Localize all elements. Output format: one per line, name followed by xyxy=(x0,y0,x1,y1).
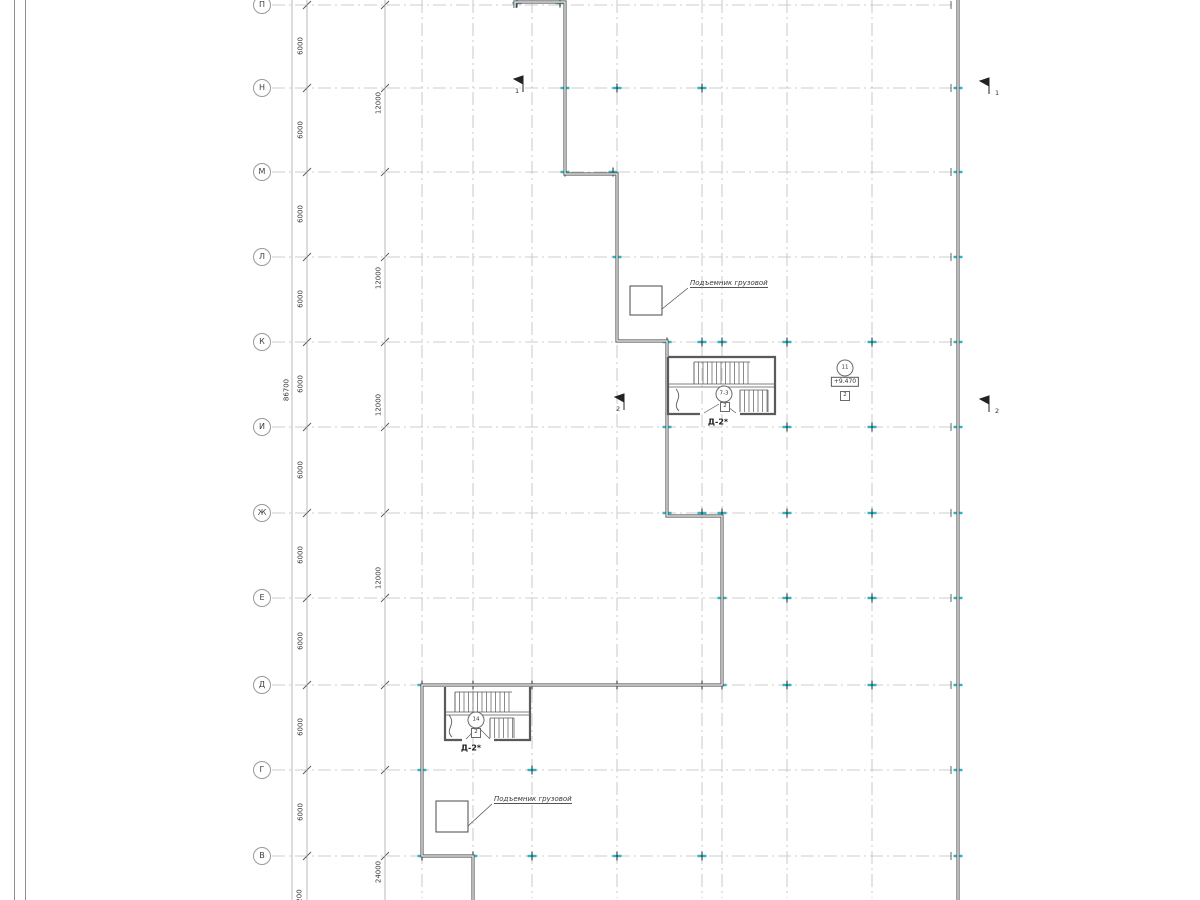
grid-layer xyxy=(272,0,963,900)
dim-12000: 12000 xyxy=(376,567,383,589)
row-axis-bubble: К xyxy=(253,333,271,351)
row-axis-bubble: Л xyxy=(253,248,271,266)
hoist-2-leader xyxy=(468,804,492,826)
dim-6000: 6000 xyxy=(298,803,305,821)
row-axis-bubble: И xyxy=(253,418,271,436)
section-2-right-number: 2 xyxy=(995,408,999,415)
stair1-tag: Д-2* xyxy=(708,418,728,427)
dim-24000: 24000 xyxy=(376,861,383,883)
dim-total-86700: 86700 xyxy=(284,379,291,401)
level-detail-square: 2 xyxy=(840,391,850,401)
section-1-left-number: 1 xyxy=(515,88,519,95)
row-axis-bubble: М xyxy=(253,163,271,181)
hoist-1-label: Подъемник грузовой xyxy=(690,279,768,288)
node-ref-circle: 11 xyxy=(837,360,854,377)
row-axis-bubble: Г xyxy=(253,761,271,779)
stair2-detail-square: 2 xyxy=(471,728,481,738)
stair1-ref-circle: 7-3 xyxy=(716,386,733,403)
dim-6000: 6000 xyxy=(298,718,305,736)
stairwell-2 xyxy=(445,687,530,740)
hoist-2 xyxy=(436,801,492,832)
dim-12000: 12000 xyxy=(376,92,383,114)
row-axis-bubble: В xyxy=(253,847,271,865)
dim-6000: 6000 xyxy=(298,375,305,393)
dim-12000: 12000 xyxy=(376,394,383,416)
row-axis-bubble: Е xyxy=(253,589,271,607)
dim-12000: 12000 xyxy=(376,267,383,289)
section-1-right-number: 1 xyxy=(995,90,999,97)
dim-6000: 6000 xyxy=(298,121,305,139)
dim-200: 200 xyxy=(297,889,304,900)
hoist-1-box xyxy=(630,286,662,315)
stair1-direction-arrow xyxy=(676,389,679,411)
stair2-tag: Д-2* xyxy=(461,744,481,753)
sheet-frame xyxy=(15,0,26,900)
section-marker-flags xyxy=(514,76,989,412)
row-axis-bubble: Ж xyxy=(253,504,271,522)
elevation-box: +9.470 xyxy=(831,377,859,387)
stair2-direction-arrow xyxy=(449,715,452,737)
building-walls xyxy=(422,0,958,900)
stair2-ref-circle: 14 xyxy=(468,712,485,729)
dim-6000: 6000 xyxy=(298,632,305,650)
row-axis-bubble: Д xyxy=(253,676,271,694)
dim-6000: 6000 xyxy=(298,546,305,564)
dim-6000: 6000 xyxy=(298,461,305,479)
row-axis-bubble: Н xyxy=(253,79,271,97)
dim-6000: 6000 xyxy=(298,290,305,308)
hoist-1-leader xyxy=(662,288,688,309)
stair1-detail-square: 2 xyxy=(720,402,730,412)
hoist-2-label: Подъемник грузовой xyxy=(494,795,572,804)
section-2-left-number: 2 xyxy=(616,406,620,413)
floor-plan-canvas xyxy=(0,0,1200,900)
section-1-right-flag xyxy=(980,78,989,94)
dim-6000: 6000 xyxy=(298,37,305,55)
hoist-2-box xyxy=(436,801,468,832)
hoist-1 xyxy=(630,286,688,315)
drawing-sheet: П Н М Л К И Ж Е Д Г В 6000 6000 6000 600… xyxy=(0,0,1200,900)
dim-6000: 6000 xyxy=(298,205,305,223)
section-2-right-flag xyxy=(980,396,989,412)
